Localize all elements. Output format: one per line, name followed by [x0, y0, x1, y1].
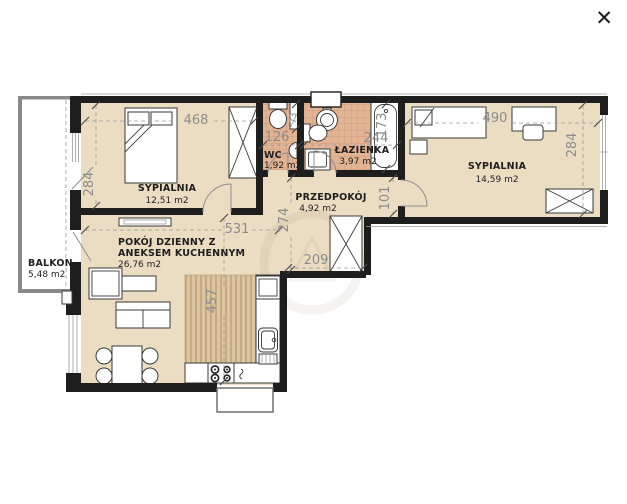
bedroom2-area: 14,59 m2: [475, 175, 518, 185]
nightstand: [410, 140, 427, 154]
stove: [208, 363, 234, 383]
balcony-area: 5,48 m2: [28, 270, 65, 280]
hallway-area: 4,92 m2: [299, 204, 336, 214]
washing-machine: [305, 149, 330, 170]
bedroom1-area: 12,51 m2: [145, 196, 188, 206]
wardrobe: [546, 189, 593, 213]
bathroom-label: ŁAZIENKA: [334, 145, 390, 156]
toilet: [269, 101, 287, 129]
dim-bedroom2-depth: 284: [565, 133, 580, 158]
window: [600, 115, 608, 190]
double-bed: [125, 108, 177, 183]
toilet: [303, 124, 327, 142]
dim-hallway-depth: 274: [277, 208, 292, 233]
wall-niche: [311, 92, 341, 107]
kitchen-sink: [259, 328, 278, 364]
hall-closet: [330, 216, 362, 272]
single-bed: [412, 107, 486, 138]
dim-bedroom2-entry: 101: [378, 186, 393, 211]
close-icon[interactable]: ✕: [591, 4, 617, 33]
armchair: [89, 268, 122, 299]
floorplan: 468 284 126 73 244 173 490 284 101 531 2…: [0, 0, 627, 504]
hallway-label: PRZEDPOKÓJ: [295, 191, 366, 203]
balcony-label: BALKON: [28, 258, 73, 269]
dim-closet-width: 209: [304, 253, 329, 268]
sofa: [116, 302, 170, 328]
dim-bathtub-length: 173: [375, 113, 390, 138]
desk-chair: [523, 125, 543, 140]
dim-living-depth: 457: [205, 289, 220, 314]
bedroom1-label: SYPIALNIA: [138, 183, 197, 194]
dim-bedroom1-depth: 284: [82, 172, 97, 197]
living-label-line2: ANEKSEM KUCHENNYM: [118, 248, 245, 259]
wc-area: 1,92 m2: [264, 161, 301, 171]
bedroom2-label: SYPIALNIA: [468, 161, 527, 172]
dim-living-width: 531: [225, 222, 250, 237]
dim-bedroom1-width: 468: [184, 113, 209, 128]
floorplan-viewer: ✕: [0, 0, 627, 504]
window: [66, 315, 81, 373]
dim-bedroom2-width: 490: [483, 111, 508, 126]
coffee-table: [122, 276, 156, 291]
kitchen-wood-floor: [185, 275, 256, 363]
wardrobe: [229, 107, 257, 178]
living-label-line1: POKÓJ DZIENNY Z: [118, 236, 216, 248]
tv-shelf: [119, 218, 171, 226]
window: [70, 133, 81, 162]
dining-table: [112, 346, 142, 384]
bathroom-area: 3,97 m2: [339, 157, 376, 167]
fridge: [256, 276, 280, 299]
living-area: 26,76 m2: [118, 260, 161, 270]
dim-wc-niche: 73: [289, 113, 299, 124]
wc-label: WC: [264, 150, 282, 161]
dim-wc-width: 126: [265, 130, 290, 145]
exterior-recess: [217, 388, 273, 412]
